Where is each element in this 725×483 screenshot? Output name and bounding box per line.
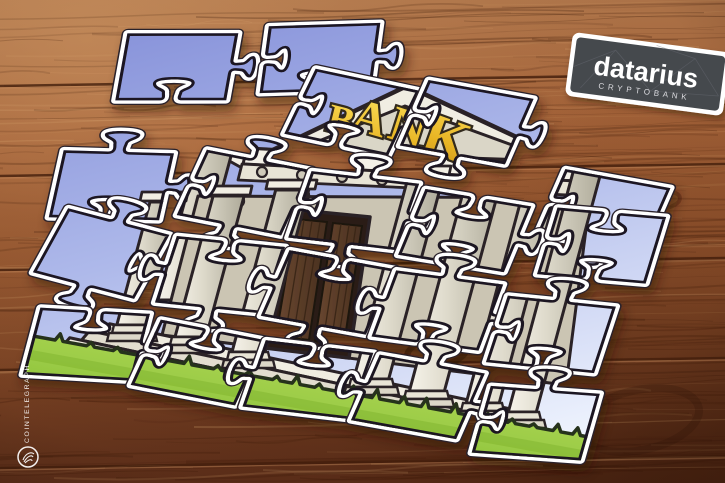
svg-text:COINTELEGRAPH: COINTELEGRAPH <box>24 364 31 443</box>
